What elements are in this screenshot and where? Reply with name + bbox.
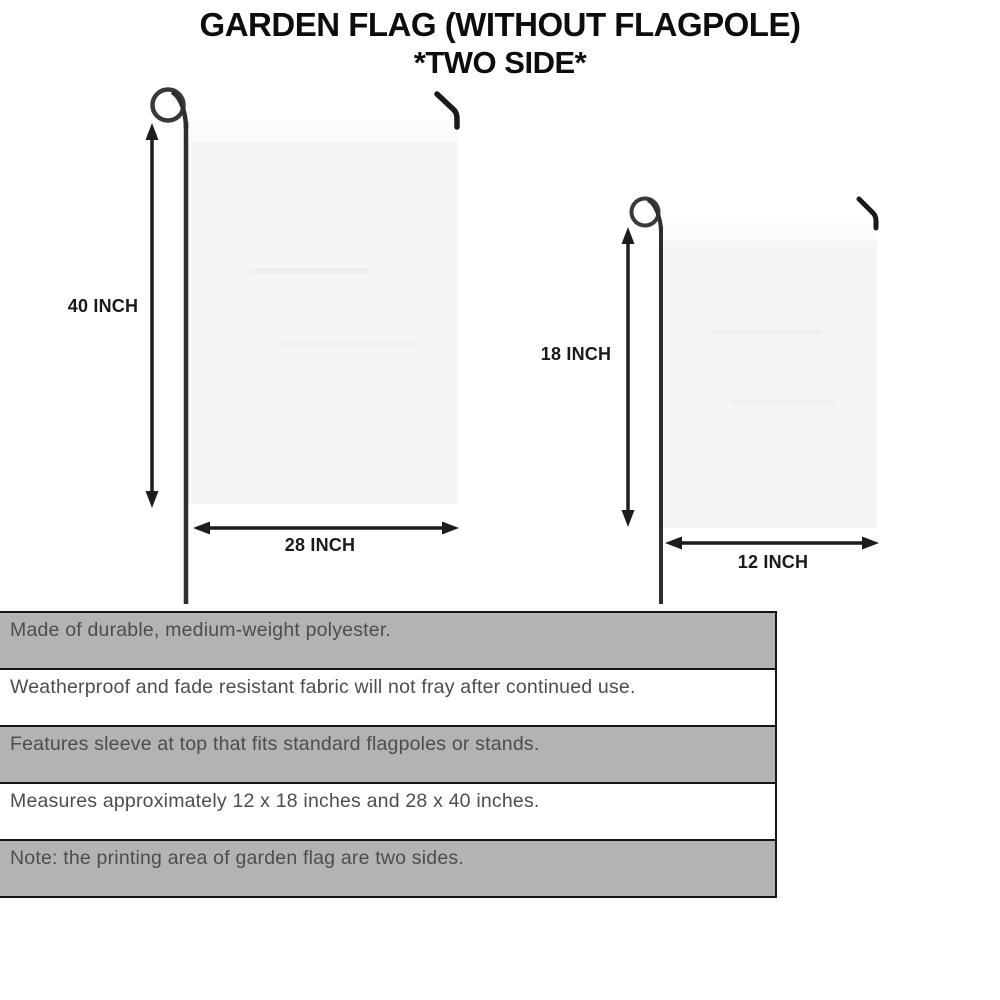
small-flag-sleeve [662,223,877,241]
feature-row-weatherproof: Weatherproof and fade resistant fabric w… [0,668,775,725]
feature-row-note: Note: the printing area of garden flag a… [0,839,775,896]
small-flag-pole-loop-icon [632,199,659,226]
large-flag-height-label: 40 INCH [55,296,151,317]
large-flag-width-label: 28 INCH [260,535,380,556]
small-flag-width-arrow [665,537,879,550]
small-flag-crease [730,400,835,405]
feature-row-material: Made of durable, medium-weight polyester… [0,611,775,668]
small-flag-width-label: 12 INCH [713,552,833,573]
large-flag-crease [280,340,420,346]
feature-list: Made of durable, medium-weight polyester… [0,611,777,898]
large-flag-pole-loop-icon [153,90,184,121]
small-flag-height-label: 18 INCH [526,344,626,365]
large-flag-sleeve [188,120,458,142]
large-flag-panel [188,120,458,504]
large-flag-crease [250,268,370,274]
feature-row-measures: Measures approximately 12 x 18 inches an… [0,782,775,839]
small-flag-crease [712,330,822,335]
small-flag-group [622,199,880,605]
large-flag-width-arrow [193,522,459,535]
small-flag-pole-neck [648,200,661,232]
feature-row-sleeve: Features sleeve at top that fits standar… [0,725,775,782]
small-flag-panel [662,223,877,528]
small-flag-height-arrow [622,227,635,527]
large-flag-group [146,90,460,605]
